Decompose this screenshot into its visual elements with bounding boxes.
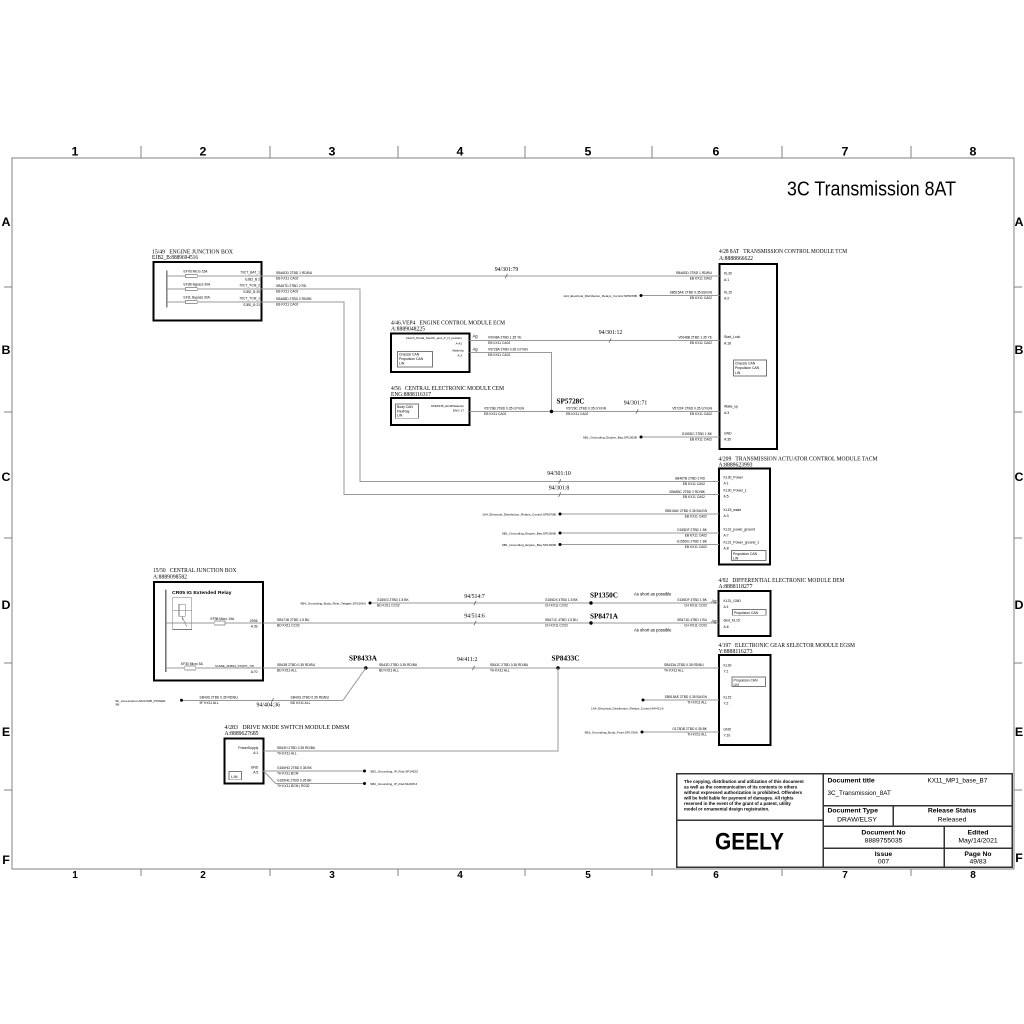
svg-text:6: 6 bbox=[713, 145, 720, 159]
svg-text:A:8889098582: A:8889098582 bbox=[153, 574, 187, 580]
svg-text:BD KX11 CC02: BD KX11 CC02 bbox=[277, 624, 300, 628]
svg-text:94/301:12: 94/301:12 bbox=[599, 330, 623, 336]
svg-text:F: F bbox=[2, 853, 10, 867]
svg-text:EB KX11 CA02: EB KX11 CA02 bbox=[690, 412, 712, 416]
svg-text:TH KX11 ALL: TH KX11 ALL bbox=[687, 701, 707, 705]
svg-text:EB KX11 CA02: EB KX11 CA02 bbox=[276, 303, 298, 307]
svg-text:A: A bbox=[2, 215, 11, 229]
svg-text:EB KX11 CA02: EB KX11 CA02 bbox=[276, 290, 298, 294]
svg-text:BD KX11 ALL: BD KX11 ALL bbox=[291, 701, 311, 705]
svg-text:SB471D 4TBD 1 BU: SB471D 4TBD 1 BU bbox=[677, 618, 707, 622]
svg-text:EF2B Bypass 30A: EF2B Bypass 30A bbox=[184, 282, 212, 286]
svg-text:A:2: A:2 bbox=[724, 297, 729, 301]
svg-text:A:1: A:1 bbox=[724, 605, 729, 609]
svg-text:9B3_Grounding_Body_Front:SP175: 9B3_Grounding_Body_Front:SP1750A bbox=[585, 731, 639, 735]
svg-text:A:8889048225: A:8889048225 bbox=[391, 326, 425, 332]
svg-text:G165HD 2TBD 0.35 BK: G165HD 2TBD 0.35 BK bbox=[277, 766, 313, 770]
svg-text:SB471C 4TBD 1.5 BU: SB471C 4TBD 1.5 BU bbox=[545, 618, 578, 622]
svg-text:007: 007 bbox=[878, 859, 890, 866]
svg-text:Chassis CAN: Chassis CAN bbox=[735, 362, 756, 366]
svg-text:1A4_Electrical_Distribution_Re: 1A4_Electrical_Distribution_Relays_Contr… bbox=[591, 706, 664, 710]
svg-text:3: 3 bbox=[329, 145, 336, 159]
svg-text:49/83: 49/83 bbox=[969, 859, 986, 866]
svg-text:3C Transmission 8AT: 3C Transmission 8AT bbox=[787, 178, 956, 201]
svg-text:EB KX11 CA02: EB KX11 CA02 bbox=[685, 545, 707, 549]
svg-text:1: 1 bbox=[72, 870, 78, 881]
svg-text:EB KX11 CA02: EB KX11 CA02 bbox=[488, 353, 510, 357]
svg-text:PowerSupply: PowerSupply bbox=[238, 746, 258, 750]
svg-text:D: D bbox=[2, 598, 11, 612]
svg-text:A:8889627685: A:8889627685 bbox=[225, 731, 259, 737]
svg-text:G155DX 4TBD 1.5 BK: G155DX 4TBD 1.5 BK bbox=[545, 598, 579, 602]
svg-text:8: 8 bbox=[970, 145, 977, 159]
svg-text:GND: GND bbox=[724, 727, 732, 731]
svg-text:TH KX11 BCM | RD32: TH KX11 BCM | RD32 bbox=[277, 784, 310, 788]
svg-text:TH KX11 ALL: TH KX11 ALL bbox=[687, 733, 707, 737]
svg-text:8889755035: 8889755035 bbox=[865, 837, 903, 844]
svg-text:A:41: A:41 bbox=[456, 341, 463, 345]
svg-text:9B4_Grounding_Body_Rear_Tailga: 9B4_Grounding_Body_Rear_Tailgate:SP130KA bbox=[300, 602, 366, 606]
svg-text:9F_Accessories:A022:09B_POWER: 9F_Accessories:A022:09B_POWER bbox=[116, 699, 167, 703]
svg-text:Wake_up: Wake_up bbox=[724, 405, 738, 409]
svg-text:EB KX11 CA02: EB KX11 CA02 bbox=[484, 412, 506, 416]
svg-text:DRAW/ELSY: DRAW/ELSY bbox=[837, 817, 877, 824]
svg-text:TH KX11 ALL: TH KX11 ALL bbox=[490, 669, 510, 673]
svg-text:A:6: A:6 bbox=[724, 625, 729, 629]
svg-text:29S6: 29S6 bbox=[250, 619, 258, 623]
svg-text:SB43C 2TBD 0.35 RD/BU: SB43C 2TBD 0.35 RD/BU bbox=[490, 663, 529, 667]
svg-text:SP8433A: SP8433A bbox=[349, 655, 378, 663]
svg-text:EJB2_B:8889694516: EJB2_B:8889694516 bbox=[152, 255, 198, 261]
svg-text:5: 5 bbox=[585, 870, 591, 881]
svg-text:KL31_power_ground: KL31_power_ground bbox=[724, 528, 756, 532]
svg-text:TH KX11 BCM: TH KX11 BCM bbox=[277, 772, 299, 776]
svg-text:Y:10: Y:10 bbox=[724, 734, 731, 738]
svg-text:GND: GND bbox=[724, 432, 732, 436]
svg-text:6: 6 bbox=[713, 870, 719, 881]
svg-text:Propulsion CAN: Propulsion CAN bbox=[734, 611, 759, 615]
svg-text:A:7: A:7 bbox=[724, 534, 729, 538]
svg-text:A:1: A:1 bbox=[253, 751, 258, 755]
svg-text:KX11_MP1_base_B7: KX11_MP1_base_B7 bbox=[928, 778, 988, 785]
svg-text:4: 4 bbox=[457, 145, 464, 159]
svg-text:94/301:8: 94/301:8 bbox=[549, 486, 570, 492]
svg-text:CR05 IG Extended Relay: CR05 IG Extended Relay bbox=[172, 590, 232, 595]
svg-text:BD KX11 ALL: BD KX11 ALL bbox=[379, 669, 399, 673]
svg-text:EF7B Micro 15A: EF7B Micro 15A bbox=[184, 269, 209, 273]
svg-text:Ag: Ag bbox=[473, 334, 479, 339]
svg-text:GND: GND bbox=[251, 766, 259, 770]
svg-text:May/14/2021: May/14/2021 bbox=[958, 837, 998, 844]
svg-text:A: A bbox=[1015, 215, 1024, 229]
svg-text:DDMS35_ECMWakeUp: DDMS35_ECMWakeUp bbox=[431, 404, 464, 408]
svg-text:EB KX11 CA02: EB KX11 CA02 bbox=[276, 277, 298, 281]
svg-text:KL30: KL30 bbox=[724, 663, 732, 667]
svg-text:SB43D 2TBD 0.35 RD/BU: SB43D 2TBD 0.35 RD/BU bbox=[200, 696, 239, 700]
svg-text:SP8433C: SP8433C bbox=[552, 655, 580, 663]
svg-text:4/28 8AT TRANSMISSION CONTRO: 4/28 8AT TRANSMISSION CONTROL MODULE TCM bbox=[719, 249, 848, 255]
svg-text:7: 7 bbox=[842, 145, 849, 159]
svg-text:As short as possible: As short as possible bbox=[634, 591, 672, 596]
svg-text:V0048A 2TBD 1.35 YE: V0048A 2TBD 1.35 YE bbox=[488, 336, 522, 340]
svg-text:EB KX11 CA02: EB KX11 CA02 bbox=[690, 296, 712, 300]
svg-text:G155DF 2TBD 1 BK: G155DF 2TBD 1 BK bbox=[677, 528, 708, 532]
svg-text:G155DG 2TBD 1 BK: G155DG 2TBD 1 BK bbox=[677, 540, 708, 544]
svg-text:A:35: A:35 bbox=[724, 438, 731, 442]
svg-text:4/56 CENTRAL ELECTRONIC MODU: 4/56 CENTRAL ELECTRONIC MODULE CEM bbox=[391, 386, 505, 392]
svg-text:V5729B 2TBD 0.35 GY/GN: V5729B 2TBD 0.35 GY/GN bbox=[484, 407, 525, 411]
svg-text:SB46TB 2TBD 2 RD: SB46TB 2TBD 2 RD bbox=[675, 477, 706, 481]
svg-text:EJB2_B 21: EJB2_B 21 bbox=[244, 303, 261, 307]
svg-text:1A4_Electrical_Distribution_Re: 1A4_Electrical_Distribution_Relays_Contr… bbox=[482, 513, 556, 517]
svg-text:Release Status: Release Status bbox=[928, 808, 977, 815]
svg-text:94/411:2: 94/411:2 bbox=[457, 657, 477, 663]
svg-text:without expressed authorizatio: without expressed authorization is prohi… bbox=[683, 790, 803, 795]
svg-text:5: 5 bbox=[585, 145, 592, 159]
svg-text:SB46DD 2TBD 1 RD/BU: SB46DD 2TBD 1 RD/BU bbox=[676, 271, 713, 275]
svg-text:EF98 Micro 15A: EF98 Micro 15A bbox=[211, 617, 235, 621]
svg-text:9B: 9B bbox=[116, 702, 120, 706]
svg-text:SB515AV 2TBD 0.35 BU/GN: SB515AV 2TBD 0.35 BU/GN bbox=[665, 509, 708, 513]
svg-text:Issue: Issue bbox=[875, 851, 893, 858]
svg-text:A:3: A:3 bbox=[724, 514, 729, 518]
svg-text:CH KX11 CC02: CH KX11 CC02 bbox=[684, 624, 707, 628]
svg-text:70CT_TCM_1: 70CT_TCM_1 bbox=[239, 296, 260, 300]
svg-text:94/301:10: 94/301:10 bbox=[547, 471, 571, 477]
svg-text:SB46BD 2TBD 2 RD/BK: SB46BD 2TBD 2 RD/BK bbox=[276, 297, 313, 301]
svg-text:94/514:7: 94/514:7 bbox=[464, 594, 485, 600]
svg-text:EB KX11 CA02: EB KX11 CA02 bbox=[683, 495, 705, 499]
svg-text:A:70: A:70 bbox=[251, 670, 258, 674]
svg-text:G155DF 4TBD 1 BK: G155DF 4TBD 1 BK bbox=[677, 598, 708, 602]
svg-text:Y:8888116273: Y:8888116273 bbox=[719, 649, 753, 655]
svg-text:V5729C 2TBD 0.35 GY/GN: V5729C 2TBD 0.35 GY/GN bbox=[566, 407, 607, 411]
svg-text:2: 2 bbox=[200, 870, 206, 881]
svg-text:model or ornamental design reg: model or ornamental design registration. bbox=[684, 806, 769, 811]
svg-text:V5728A 2TBD 0.35 GY/GN: V5728A 2TBD 0.35 GY/GN bbox=[488, 348, 528, 352]
svg-text:SB46DD 2TBD 1 RD/BU: SB46DD 2TBD 1 RD/BU bbox=[276, 271, 313, 275]
svg-text:9B1_Grounding_Engine_Bay:SP100: 9B1_Grounding_Engine_Bay:SP1000B bbox=[502, 543, 556, 547]
svg-text:ENG 17: ENG 17 bbox=[453, 409, 464, 413]
svg-text:C: C bbox=[2, 470, 11, 484]
svg-text:E: E bbox=[1015, 725, 1023, 739]
svg-text:CH KX11 CC02: CH KX11 CC02 bbox=[684, 604, 707, 608]
svg-text:A:5: A:5 bbox=[724, 495, 729, 499]
svg-text:TH KX11 ALL: TH KX11 ALL bbox=[277, 752, 297, 756]
svg-text:SB46TD 2TBD 2 RD: SB46TD 2TBD 2 RD bbox=[276, 284, 307, 288]
svg-text:reserved in the event of the g: reserved in the event of the grant of a … bbox=[684, 801, 791, 806]
svg-text:CH KX11 CC02: CH KX11 CC02 bbox=[545, 624, 568, 628]
svg-text:KL31_Power_ground_1: KL31_Power_ground_1 bbox=[724, 541, 760, 545]
svg-text:EB KX11 CA02: EB KX11 CA02 bbox=[690, 277, 712, 281]
svg-text:As short as possible: As short as possible bbox=[634, 628, 672, 633]
svg-text:KL30_Power: KL30_Power bbox=[724, 475, 744, 479]
svg-text:4: 4 bbox=[457, 870, 463, 881]
svg-text:Propulsion CAN: Propulsion CAN bbox=[735, 366, 760, 370]
svg-text:BD KX11 CC02: BD KX11 CC02 bbox=[377, 604, 400, 608]
svg-text:94/301:79: 94/301:79 bbox=[495, 267, 519, 273]
svg-text:1A4_Electrical_Distribution_Re: 1A4_Electrical_Distribution_Relays_Contr… bbox=[563, 294, 637, 298]
svg-text:SB43B 2TBD 0.35 RD/BU: SB43B 2TBD 0.35 RD/BU bbox=[277, 663, 316, 667]
svg-text:4/283 DRIVE MODE SWITCH MODU: 4/283 DRIVE MODE SWITCH MODULE DMSM bbox=[225, 725, 351, 731]
svg-text:E: E bbox=[2, 725, 10, 739]
svg-text:EJB2_B 2: EJB2_B 2 bbox=[245, 277, 260, 281]
svg-text:1: 1 bbox=[72, 145, 79, 159]
svg-text:G155DC 2TBD 1 BK: G155DC 2TBD 1 BK bbox=[682, 432, 713, 436]
svg-text:Start_Lock: Start_Lock bbox=[724, 335, 741, 339]
svg-text:8: 8 bbox=[970, 870, 976, 881]
svg-text:Document No: Document No bbox=[861, 830, 905, 837]
svg-text:A:8888866622: A:8888866622 bbox=[719, 256, 753, 262]
svg-text:SB515AK 2TBD 0.35 BU/GN: SB515AK 2TBD 0.35 BU/GN bbox=[670, 291, 713, 295]
svg-text:9F KX11 ALL: 9F KX11 ALL bbox=[200, 701, 219, 705]
svg-text:LIN: LIN bbox=[399, 362, 405, 366]
svg-text:A:5: A:5 bbox=[253, 771, 258, 775]
svg-text:B: B bbox=[2, 343, 11, 357]
svg-text:EB KX11 CA02: EB KX11 CA02 bbox=[685, 534, 707, 538]
svg-text:A:18: A:18 bbox=[724, 341, 731, 345]
svg-text:94/404:36: 94/404:36 bbox=[257, 702, 281, 708]
svg-text:D: D bbox=[1015, 598, 1024, 612]
svg-text:7: 7 bbox=[842, 870, 848, 881]
svg-text:SP8471A: SP8471A bbox=[590, 613, 619, 621]
svg-text:EB KX11 CA02: EB KX11 CA02 bbox=[690, 341, 712, 345]
svg-text:S1S5E_SN894_START_YW: S1S5E_SN894_START_YW bbox=[215, 664, 254, 668]
svg-text:LIN: LIN bbox=[231, 774, 237, 779]
svg-text:G155GI 2TBD 1.5 BK: G155GI 2TBD 1.5 BK bbox=[377, 598, 410, 602]
svg-text:15/50 CENTRAL JUNCTION BOX: 15/50 CENTRAL JUNCTION BOX bbox=[153, 568, 237, 574]
svg-text:2: 2 bbox=[200, 145, 207, 159]
svg-text:will be held liable for paymen: will be held liable for payment of damag… bbox=[683, 795, 794, 800]
svg-text:Clutch_Pedal_Switch_and_P_N_po: Clutch_Pedal_Switch_and_P_N_position bbox=[406, 336, 463, 340]
svg-text:LIN: LIN bbox=[733, 557, 739, 561]
svg-text:Propulsion CAN: Propulsion CAN bbox=[734, 678, 759, 682]
svg-text:KL31_GND: KL31_GND bbox=[724, 599, 742, 603]
svg-text:died_KL15: died_KL15 bbox=[724, 619, 740, 623]
svg-text:Ag: Ag bbox=[473, 346, 479, 351]
svg-text:A:1: A:1 bbox=[724, 278, 729, 282]
svg-text:The copying, distribution and: The copying, distribution and utilizatio… bbox=[684, 779, 804, 784]
svg-text:CH KX11 CC02: CH KX11 CC02 bbox=[545, 604, 568, 608]
svg-text:SB515AE 2TBD 0.35 BU/GN: SB515AE 2TBD 0.35 BU/GN bbox=[665, 695, 708, 699]
svg-text:Propulsion CAN: Propulsion CAN bbox=[399, 357, 424, 361]
svg-text:A:8: A:8 bbox=[724, 546, 729, 550]
svg-text:9B2_Grounding_IP_Rod:SP1492Z: 9B2_Grounding_IP_Rod:SP1492Z bbox=[371, 770, 419, 774]
svg-text:EB KX11 CA02: EB KX11 CA02 bbox=[683, 482, 705, 486]
svg-text:KL30: KL30 bbox=[724, 271, 732, 275]
svg-text:Chassis CAN: Chassis CAN bbox=[399, 353, 420, 357]
svg-text:Released: Released bbox=[938, 817, 967, 824]
svg-text:Document Type: Document Type bbox=[828, 808, 879, 815]
svg-text:V0048B 2TBD 1.35 YE: V0048B 2TBD 1.35 YE bbox=[678, 336, 712, 340]
svg-text:SB43D 2TBD 0.35 RD/BU: SB43D 2TBD 0.35 RD/BU bbox=[379, 663, 418, 667]
svg-text:94/514:6: 94/514:6 bbox=[464, 614, 485, 620]
svg-text:3: 3 bbox=[329, 870, 335, 881]
svg-text:SB46BC 2TBD 2 RD/BK: SB46BC 2TBD 2 RD/BK bbox=[669, 490, 706, 494]
svg-text:Document title: Document title bbox=[828, 778, 875, 785]
svg-text:9B1_Grounding_Engine_Bay:SP100: 9B1_Grounding_Engine_Bay:SP1000B bbox=[502, 532, 556, 536]
svg-text:A:3: A:3 bbox=[457, 354, 462, 358]
svg-text:Ag: Ag bbox=[711, 618, 717, 623]
svg-text:A:1: A:1 bbox=[724, 482, 729, 486]
svg-text:9B2_Grounding_IP_Rod:94/406:3: 9B2_Grounding_IP_Rod:94/406:3 bbox=[371, 782, 418, 786]
svg-text:SB43G 2TBD 0.35 RD/BU: SB43G 2TBD 0.35 RD/BU bbox=[291, 696, 330, 700]
svg-text:EF2L Bypass 30A: EF2L Bypass 30A bbox=[184, 295, 211, 299]
svg-text:B: B bbox=[1015, 343, 1024, 357]
svg-text:Propulsion CAN: Propulsion CAN bbox=[733, 552, 758, 556]
svg-text:LIN: LIN bbox=[735, 371, 741, 375]
svg-text:A:39: A:39 bbox=[251, 624, 258, 628]
svg-text:EB KX11 CA02: EB KX11 CA02 bbox=[690, 438, 712, 442]
svg-text:KL30_Power_1: KL30_Power_1 bbox=[724, 489, 747, 493]
svg-text:EB KX11 CA02: EB KX11 CA02 bbox=[566, 412, 588, 416]
svg-text:Y:1: Y:1 bbox=[724, 670, 729, 674]
svg-text:BD KX11 ALL: BD KX11 ALL bbox=[277, 669, 297, 673]
svg-text:as well as the communication o: as well as the communication of its cont… bbox=[684, 784, 798, 789]
svg-text:A:3: A:3 bbox=[724, 411, 729, 415]
svg-text:Edited: Edited bbox=[968, 830, 989, 837]
svg-text:Ag: Ag bbox=[711, 598, 717, 603]
svg-text:WakeUp: WakeUp bbox=[452, 348, 464, 352]
svg-text:94/301:71: 94/301:71 bbox=[624, 401, 648, 407]
svg-text:KL15: KL15 bbox=[724, 291, 732, 295]
svg-text:EF30 Micro 5A: EF30 Micro 5A bbox=[181, 662, 204, 666]
svg-text:SP5728C: SP5728C bbox=[557, 398, 585, 406]
svg-text:EB KX11 CA02: EB KX11 CA02 bbox=[488, 341, 510, 345]
svg-text:EJB2_B 30: EJB2_B 30 bbox=[244, 290, 261, 294]
svg-text:Y:2: Y:2 bbox=[724, 702, 729, 706]
svg-text:G165HE 2TBD 0.35 BK: G165HE 2TBD 0.35 BK bbox=[277, 779, 312, 783]
svg-text:Page No: Page No bbox=[964, 851, 991, 858]
svg-text:70CT_TCM_2: 70CT_TCM_2 bbox=[239, 283, 260, 287]
svg-text:GEELY: GEELY bbox=[715, 829, 784, 856]
svg-text:EB KX11 CA02: EB KX11 CA02 bbox=[685, 515, 707, 519]
svg-text:TH KX11 ALL: TH KX11 ALL bbox=[664, 669, 684, 673]
svg-text:LIN: LIN bbox=[397, 413, 403, 417]
svg-text:9B1_Grounding_Engine_Bay:SP100: 9B1_Grounding_Engine_Bay:SP1000B bbox=[583, 436, 637, 440]
svg-text:KL15_wake: KL15_wake bbox=[724, 508, 742, 512]
svg-text:LIN: LIN bbox=[734, 683, 740, 687]
svg-text:SB43H 2TBD 0.35 RD/BU: SB43H 2TBD 0.35 RD/BU bbox=[277, 746, 316, 750]
svg-text:G175DB 2TBD 0.35 BK: G175DB 2TBD 0.35 BK bbox=[672, 727, 707, 731]
svg-text:KL15: KL15 bbox=[724, 695, 732, 699]
svg-text:3C_Transmission_8AT: 3C_Transmission_8AT bbox=[828, 790, 891, 797]
svg-text:SB433A 2TBD 0.35 RD/BU: SB433A 2TBD 0.35 RD/BU bbox=[664, 663, 704, 667]
svg-text:A:8888118277: A:8888118277 bbox=[719, 584, 753, 590]
svg-text:SB471B 2TBD 1.5 BU: SB471B 2TBD 1.5 BU bbox=[277, 618, 310, 622]
svg-text:SP1350C: SP1350C bbox=[590, 592, 618, 600]
svg-text:70CT_BAT_1: 70CT_BAT_1 bbox=[240, 270, 260, 274]
svg-text:V5729F 2TBD 0.35 GY/GN: V5729F 2TBD 0.35 GY/GN bbox=[672, 407, 712, 411]
svg-text:F: F bbox=[1015, 851, 1023, 865]
svg-text:C: C bbox=[1015, 470, 1024, 484]
